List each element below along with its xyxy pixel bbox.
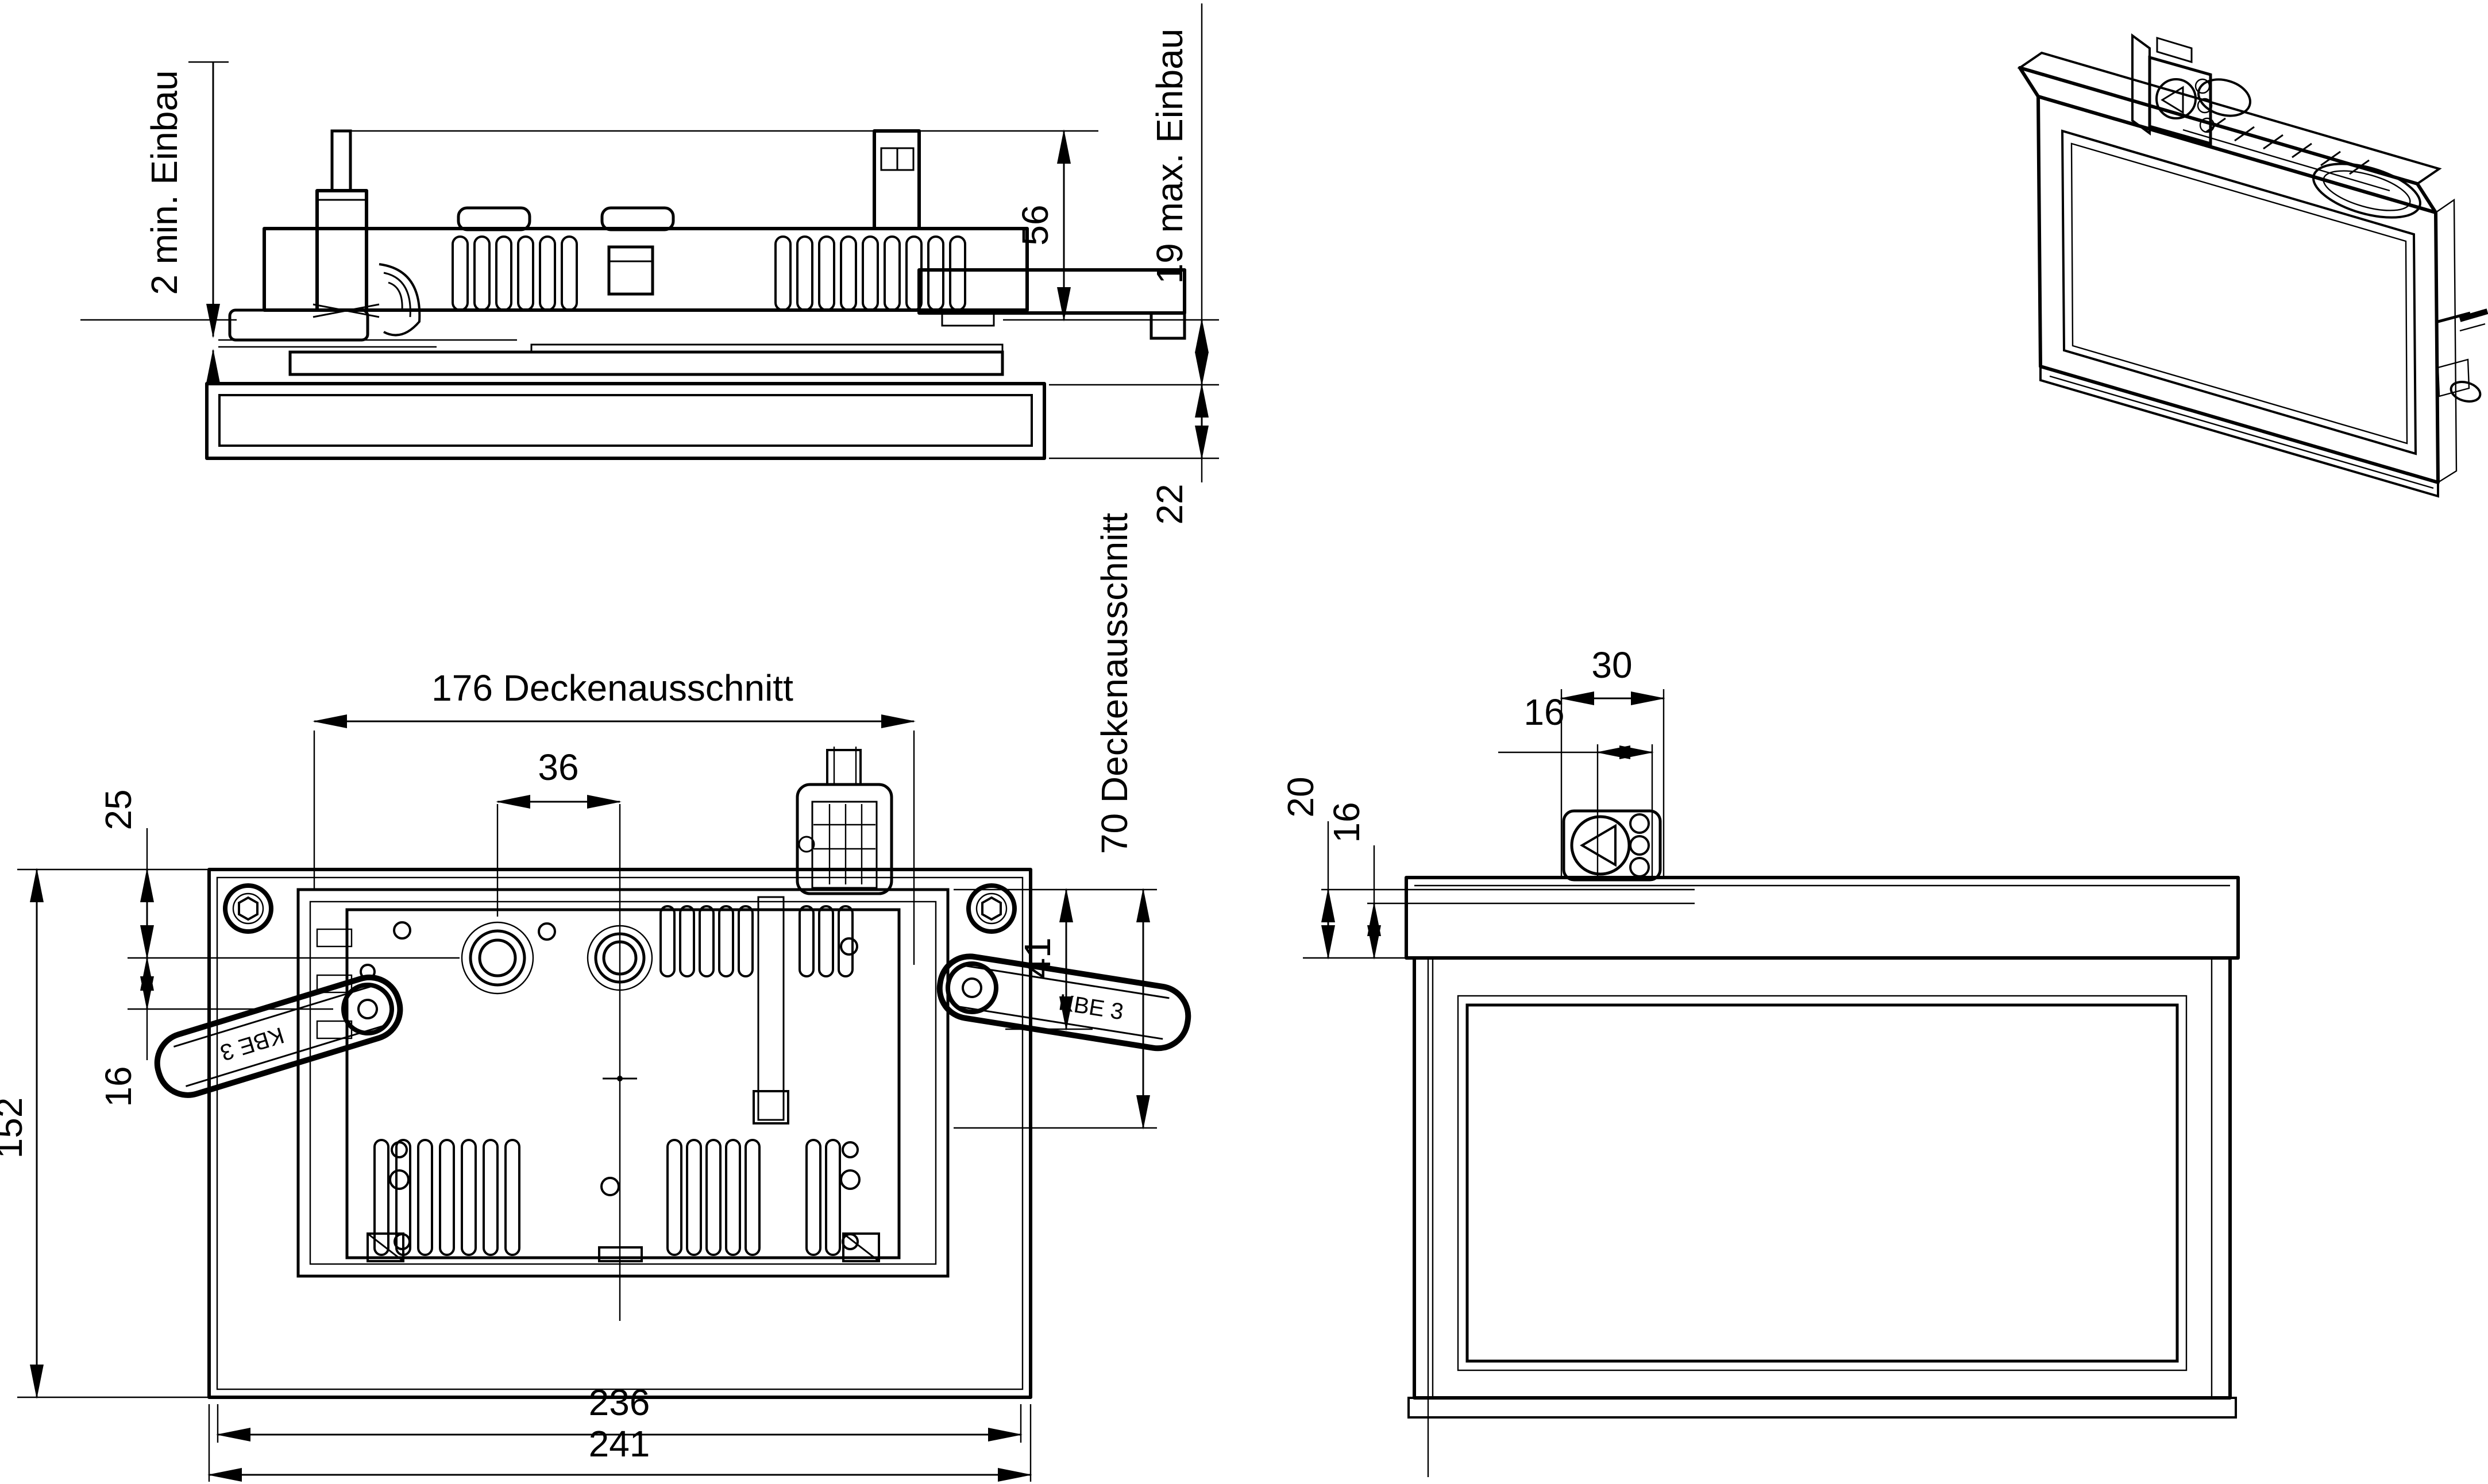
dim-label-cutout-depth: 70 Deckenausschnitt — [1094, 513, 1135, 854]
dim-recess-height: 56 — [1015, 131, 1064, 320]
dim-label-gland-spacing: 36 — [538, 747, 578, 788]
dim-label-cutout-width: 176 Deckenausschnitt — [431, 667, 793, 709]
iso-right-fittings — [2438, 311, 2487, 405]
dim-gland-spacing: 36 — [497, 747, 620, 917]
dim-label-overall-width: 241 — [589, 1423, 650, 1464]
clamp-arm-right — [919, 270, 1185, 338]
clamp-post-left — [317, 131, 367, 310]
clamp-lever-left: KBE 3 — [150, 970, 408, 1103]
dim-recess-inner: 16 — [1326, 802, 1374, 958]
dim-label-terminal-inner: 16 — [1523, 691, 1564, 733]
foot-bracket-left — [230, 304, 379, 340]
gear-tray-plate — [347, 834, 899, 1321]
drawing-canvas: 2 min. Einbau 56 19 max. Einbau 22 — [0, 0, 2488, 1484]
front-view: 30 16 20 16 — [1280, 644, 2238, 1477]
mounting-plate-side — [290, 345, 1002, 374]
top-plan-view: KBE 3 KBE 3 176 Deckenausschnitt 36 — [0, 513, 1193, 1482]
dim-label-recess-left: 20 — [1280, 776, 1321, 817]
dim-recess-left: 20 — [1280, 776, 1328, 958]
dim-label-gland-to-pivot: 16 — [98, 1066, 139, 1107]
corner-screw-left — [225, 886, 271, 932]
isometric-view — [2020, 36, 2487, 496]
dim-label-top-to-gland: 25 — [98, 789, 139, 830]
latch-assembly — [797, 747, 892, 894]
center-channel — [754, 897, 788, 1123]
dim-housing-depth: 152 — [0, 869, 209, 1397]
terminal-block — [1564, 811, 1660, 880]
dim-label-inner-width: 236 — [589, 1382, 650, 1423]
cable-gland-left — [462, 922, 533, 994]
bezel-frame-side — [207, 384, 1044, 458]
vent-slots-bottom-left — [375, 1140, 519, 1255]
technical-drawing: 2 min. Einbau 56 19 max. Einbau 22 — [0, 0, 2488, 1484]
dim-label-tray-depth: 41 — [1017, 937, 1058, 978]
vent-slots-top — [661, 906, 853, 976]
dim-label-housing-depth: 152 — [0, 1097, 30, 1159]
dim-label-frame-height: 22 — [1149, 484, 1190, 524]
dim-cutout-depth: 70 Deckenausschnitt — [954, 513, 1157, 1128]
clamp-lever-right-label: KBE 3 — [1057, 990, 1125, 1025]
corner-screw-right — [969, 886, 1015, 932]
dim-max-ceiling: 19 max. Einbau — [1149, 3, 1202, 482]
sign-body — [1409, 958, 2236, 1417]
dim-label-max-ceiling: 19 max. Einbau — [1149, 29, 1190, 284]
spring-coil — [379, 264, 419, 335]
dim-cutout-width: 176 Deckenausschnitt — [314, 667, 914, 965]
dim-min-recess: 2 min. Einbau — [144, 62, 229, 380]
dim-label-min-recess: 2 min. Einbau — [144, 70, 185, 295]
dim-label-terminal-width: 30 — [1591, 644, 1632, 686]
dim-frame-height: 22 — [1149, 385, 1202, 525]
clamp-lever-right: KBE 3 — [935, 952, 1193, 1053]
dim-top-to-gland: 25 — [98, 789, 460, 958]
clamp-post-right — [874, 131, 919, 229]
iso-top-housing — [2020, 53, 2456, 482]
dim-label-recess-height: 56 — [1015, 204, 1056, 245]
dim-label-recess-inner: 16 — [1326, 802, 1367, 843]
vent-slots-bottom-right — [668, 1140, 840, 1255]
ceiling-edge-lines — [1303, 890, 1695, 1477]
gear-body-side — [264, 208, 1027, 310]
side-section-view: 2 min. Einbau 56 19 max. Einbau 22 — [80, 3, 1219, 525]
